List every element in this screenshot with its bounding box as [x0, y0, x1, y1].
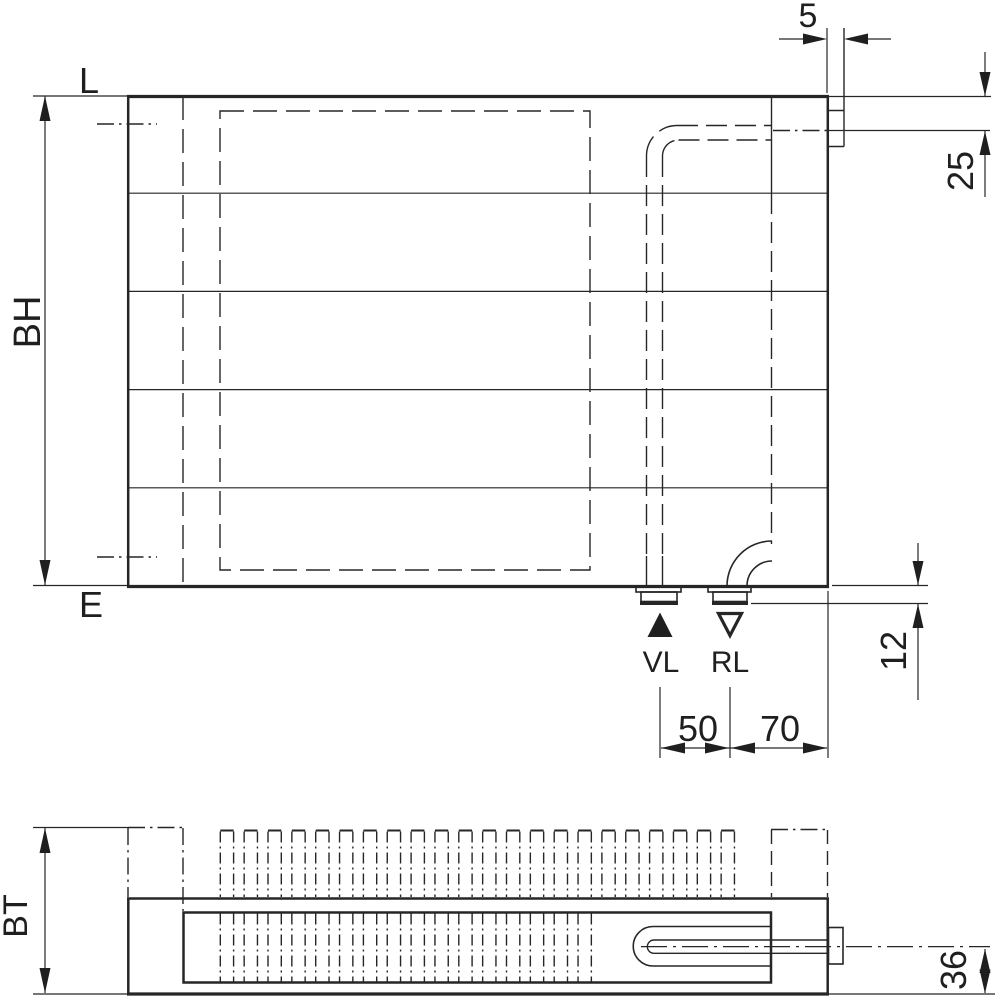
plan-view: BT 36: [0, 828, 995, 996]
return-label: RL: [711, 646, 749, 679]
valve-connector: [827, 28, 844, 147]
bh-label: BH: [7, 296, 49, 349]
return-pipe-elbow: [727, 541, 772, 586]
dim12-arrow-up-icon: [913, 604, 924, 628]
dim12-extension-lines: [751, 586, 928, 604]
return-connection-body: [713, 592, 747, 602]
vent-label: L: [79, 60, 99, 101]
dim25-arrow-up-icon: [980, 131, 991, 155]
dim70-arrow-left-icon: [731, 743, 755, 754]
dim36-arrow-up-icon: [980, 949, 991, 973]
dim36-value: 36: [933, 950, 974, 990]
supply-connection-body: [641, 592, 677, 602]
supply-pipe-hidden-lines: [647, 156, 663, 556]
plan-right-phantom-lines: [772, 830, 828, 897]
dim5-arrow-left-icon: [844, 34, 868, 45]
fin-row-back: [220, 831, 734, 898]
bh-arrow-down-icon: [40, 560, 51, 585]
convector-channel-outline: [184, 913, 772, 983]
fin-row-front: [220, 914, 591, 983]
supply-pipe-bend: [647, 126, 679, 157]
bt-arrow-up-icon: [40, 828, 51, 853]
dim36-arrow-down-icon: [980, 970, 991, 994]
water-channel-lines: [127, 193, 828, 488]
bh-arrow-up-icon: [40, 96, 51, 121]
supply-label: VL: [643, 646, 680, 679]
dim12-value: 12: [873, 631, 914, 671]
dim50-value: 50: [678, 708, 718, 749]
bt-arrow-down-icon: [40, 968, 51, 993]
radiator-technical-drawing: BH L E 5: [0, 0, 1000, 1000]
dim5-value: 5: [799, 0, 818, 35]
dim12-arrow-down-icon: [913, 561, 924, 585]
dim5-arrow-right-icon: [803, 34, 827, 45]
supply-pipe-top-lines: [677, 126, 771, 141]
dim70-arrow-right-icon: [803, 743, 827, 754]
dim25-arrow-down-icon: [980, 72, 991, 96]
drain-label: E: [79, 584, 103, 625]
supply-direction-marker-icon: [648, 613, 673, 638]
supply-pipe-lines: [647, 556, 663, 586]
front-view: BH L E 5: [7, 0, 991, 758]
dim25-value: 25: [940, 151, 981, 191]
bt-label: BT: [0, 894, 35, 937]
convector-plate-hidden-outline: [220, 111, 590, 570]
dim70-value: 70: [760, 708, 800, 749]
return-direction-marker-icon: [719, 614, 742, 636]
pipe-connector-tab: [829, 928, 844, 965]
